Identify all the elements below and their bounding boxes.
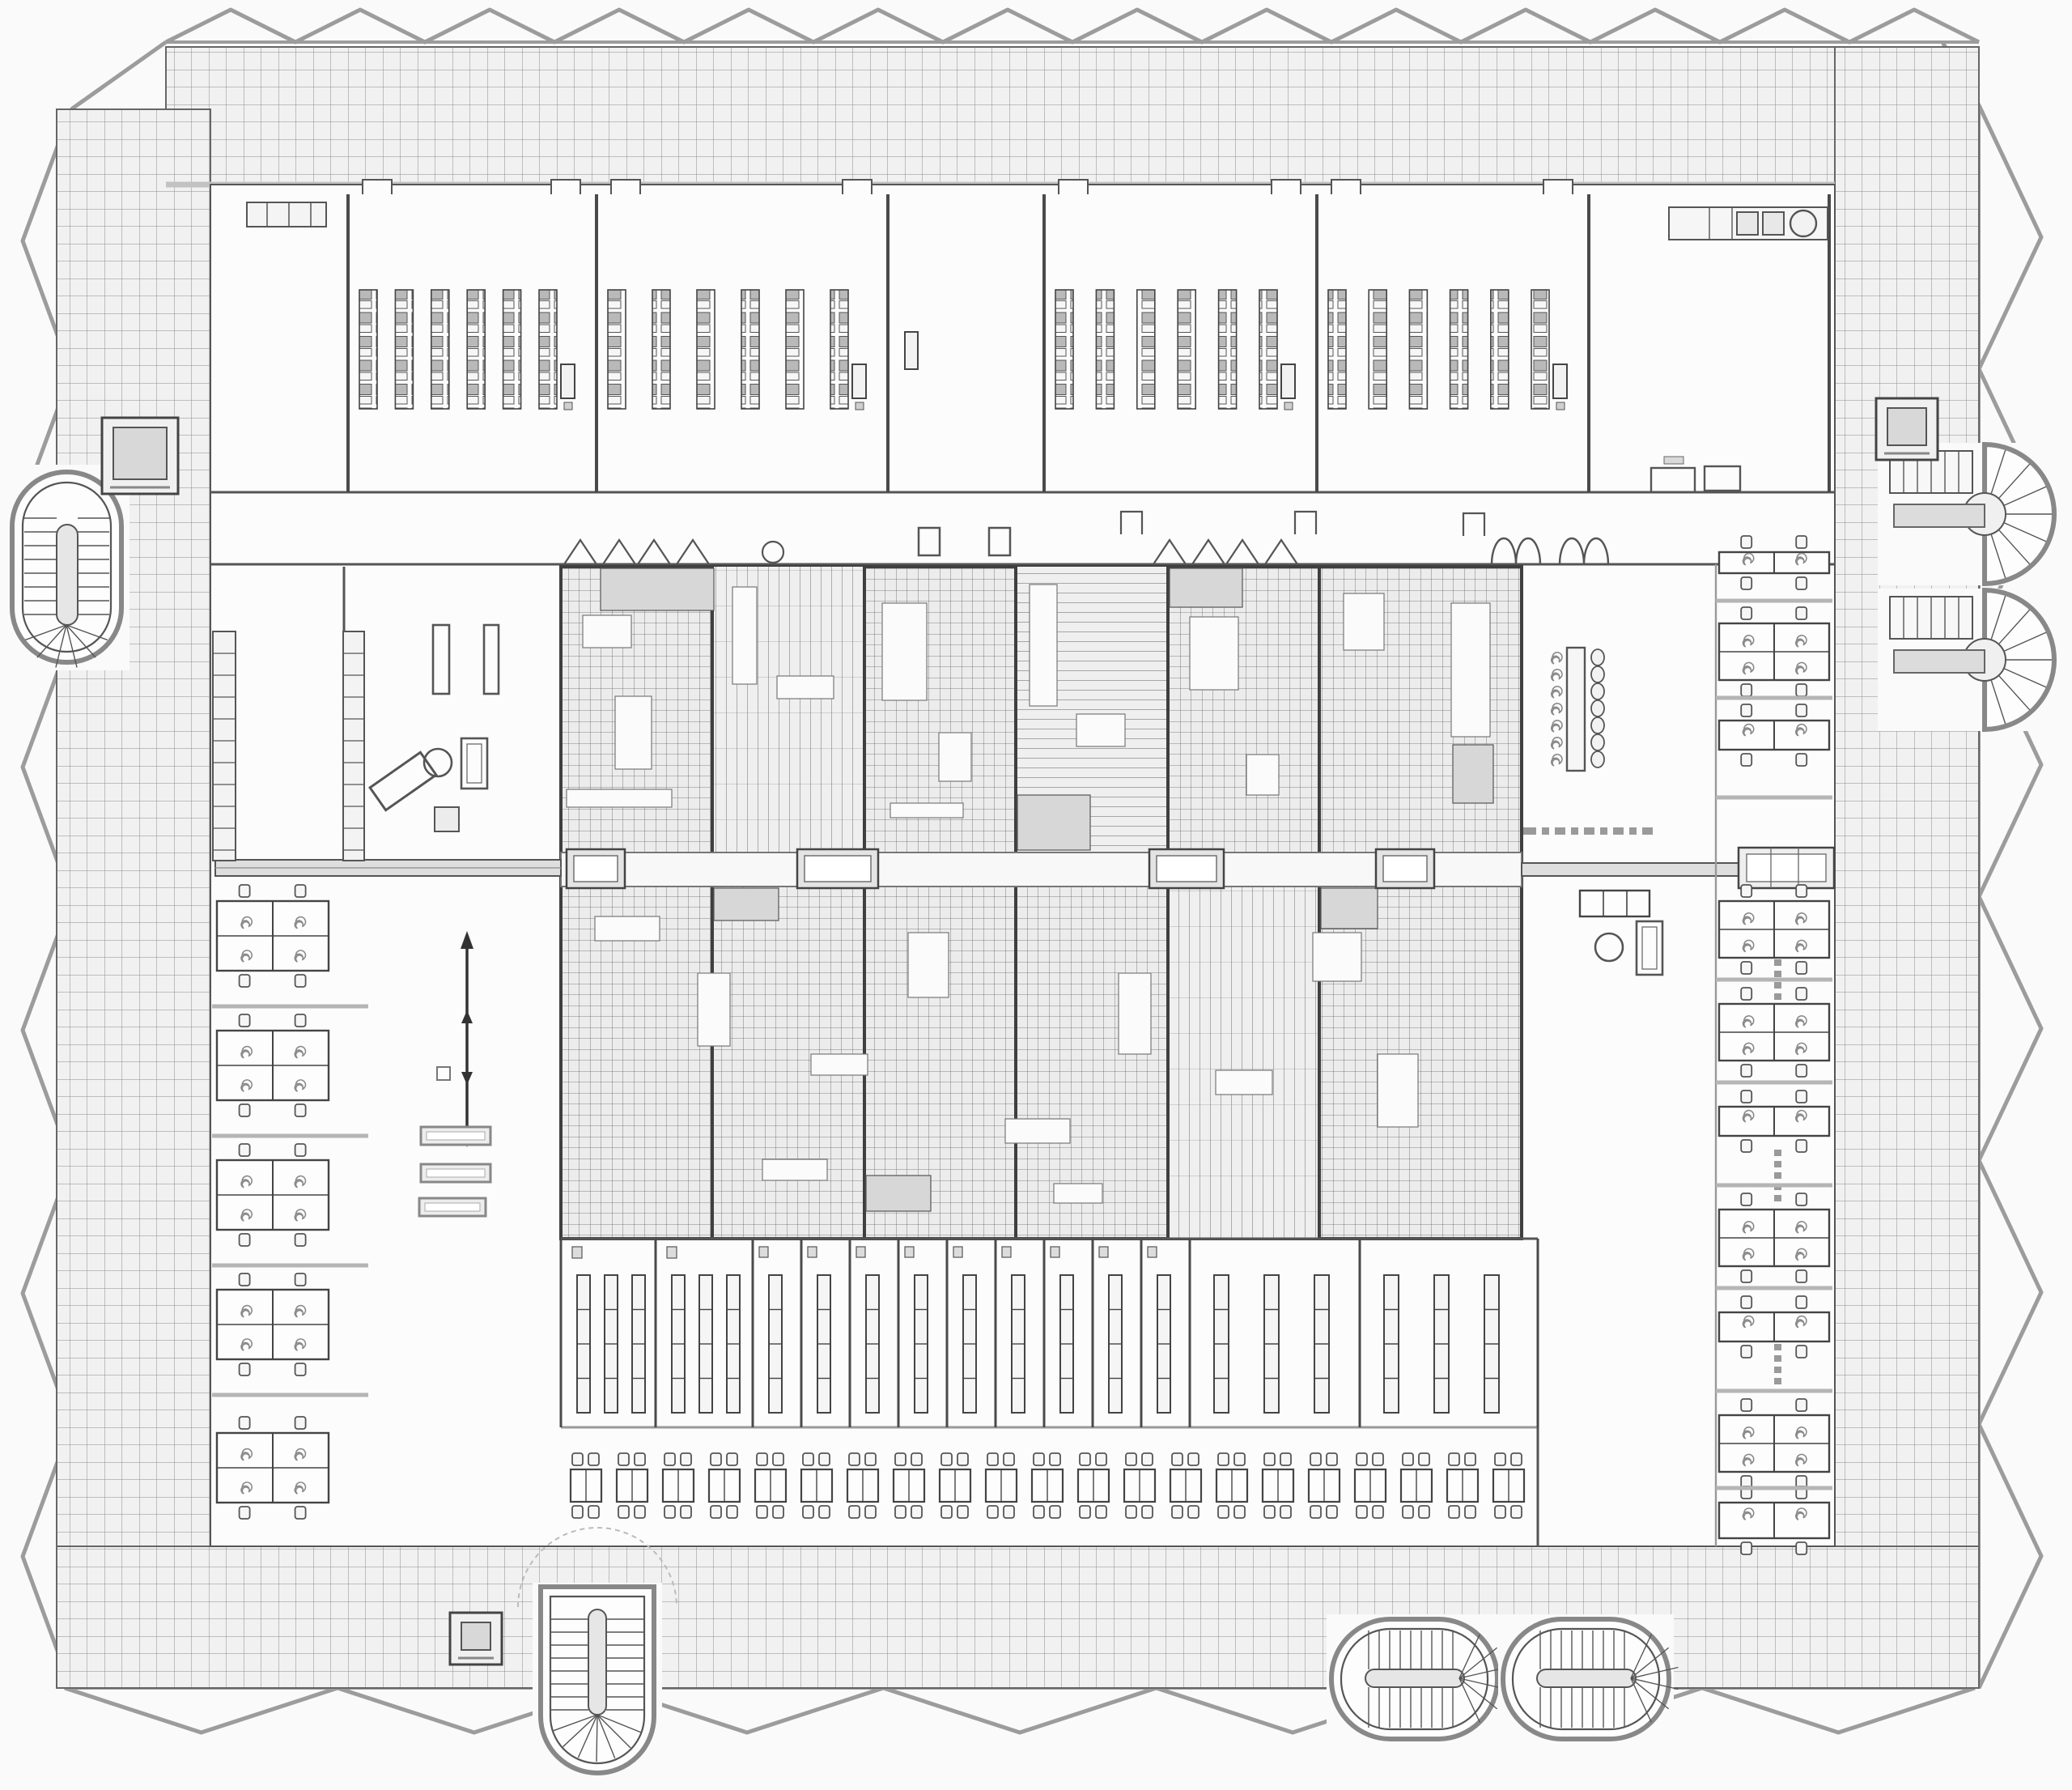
elevator-1 <box>102 418 178 494</box>
stack-dense-block <box>601 568 714 610</box>
chair-icon <box>1796 1346 1807 1358</box>
desk-row <box>539 290 557 409</box>
stack-aisle-gap <box>698 973 730 1046</box>
chair-icon <box>1327 1453 1337 1465</box>
chair-icon <box>1741 1270 1751 1282</box>
chair-icon <box>1796 536 1807 548</box>
desk-row <box>1531 290 1549 409</box>
stack-aisle-gap <box>1030 585 1057 706</box>
chair-icon <box>1218 1453 1229 1465</box>
chair-icon <box>240 1014 250 1027</box>
wall-shelf <box>247 202 326 227</box>
chair-icon <box>1310 1453 1321 1465</box>
seat-oval-icon <box>1591 649 1604 665</box>
stack-aisle-gap <box>762 1159 827 1180</box>
long-table <box>1567 648 1585 771</box>
chair-icon <box>1280 1453 1291 1465</box>
shelf-unit <box>672 1275 685 1413</box>
shelf-unit <box>699 1275 712 1413</box>
band-right <box>1835 47 1979 1688</box>
chair-icon <box>295 1234 306 1246</box>
desk-row <box>359 290 377 409</box>
chair-icon <box>711 1506 721 1518</box>
stack-aisle-gap <box>1005 1119 1070 1143</box>
chair-icon <box>1741 754 1751 766</box>
chair-icon <box>664 1453 675 1465</box>
seat-oval-icon <box>1591 734 1604 750</box>
chair-icon <box>1419 1506 1429 1518</box>
chair-icon <box>1050 1506 1060 1518</box>
chair-icon <box>635 1453 645 1465</box>
reading-cluster-left-1 <box>217 885 329 987</box>
chair-icon <box>1419 1453 1429 1465</box>
chair-icon <box>1741 1296 1751 1308</box>
stack-aisle-gap <box>1216 1070 1272 1095</box>
chair-icon <box>1796 885 1807 897</box>
desk-row <box>467 290 485 409</box>
book-stack-block <box>561 567 1522 1239</box>
chair-icon <box>240 1417 250 1429</box>
stack-aisle-gap <box>1054 1184 1102 1203</box>
shelf-unit <box>1157 1275 1170 1413</box>
chair-icon <box>1741 684 1751 696</box>
chair-icon <box>1373 1506 1383 1518</box>
chair-icon <box>1264 1453 1275 1465</box>
shelf-unit <box>1109 1275 1122 1413</box>
chair-icon <box>295 1363 306 1375</box>
chair-icon <box>1188 1506 1199 1518</box>
service-desk <box>905 332 918 369</box>
chair-icon <box>1741 1091 1751 1103</box>
chair-icon <box>711 1453 721 1465</box>
desk-row <box>1491 290 1509 409</box>
teacher-chair <box>564 402 572 410</box>
chair-icon <box>572 1453 583 1465</box>
counter-table <box>1580 891 1650 916</box>
chair-icon <box>1796 754 1807 766</box>
chair-icon <box>1126 1453 1136 1465</box>
band-top <box>166 47 1979 185</box>
seat-oval-icon <box>1591 700 1604 716</box>
chair-icon <box>240 1144 250 1156</box>
chair-icon <box>1796 607 1807 619</box>
chair-icon <box>773 1506 783 1518</box>
chair-icon <box>240 1273 250 1286</box>
chair-icon <box>1796 962 1807 974</box>
chair-icon <box>295 1417 306 1429</box>
chair-icon <box>1796 1091 1807 1103</box>
chair-icon <box>1004 1506 1014 1518</box>
desk-row <box>830 290 848 409</box>
door-gap-right <box>1543 179 1573 192</box>
chair-icon <box>1080 1506 1090 1518</box>
stack-dense-block <box>714 888 779 921</box>
shelf-unit <box>769 1275 782 1413</box>
chair-icon <box>819 1453 830 1465</box>
chair-icon <box>1511 1506 1522 1518</box>
chair-icon <box>957 1506 968 1518</box>
stack-aisle-gap <box>1246 755 1279 795</box>
shelf-unit <box>1012 1275 1025 1413</box>
chair-icon <box>1126 1506 1136 1518</box>
stack-aisle-gap <box>595 916 660 941</box>
chair-icon <box>1080 1453 1090 1465</box>
teacher-desk <box>852 364 866 398</box>
chair-icon <box>635 1506 645 1518</box>
stack-aisle-gap <box>908 933 949 997</box>
chair-icon <box>1264 1506 1275 1518</box>
stair-oval-bottom-right-1 <box>1327 1614 1506 1744</box>
chair-icon <box>1050 1453 1060 1465</box>
stack-dense-block <box>1453 745 1493 803</box>
desk-row <box>1369 290 1386 409</box>
chair-icon <box>895 1453 906 1465</box>
chair-icon <box>1373 1453 1383 1465</box>
desk-row <box>431 290 449 409</box>
anteroom <box>247 202 326 227</box>
chair-icon <box>1357 1453 1367 1465</box>
chair-icon <box>240 1104 250 1116</box>
chair-icon <box>757 1453 767 1465</box>
shelf-unit <box>1314 1275 1329 1413</box>
stack-aisle-gap <box>1378 1054 1418 1127</box>
desk-row <box>1137 290 1155 409</box>
chair-icon <box>1511 1453 1522 1465</box>
chair-icon <box>1004 1453 1014 1465</box>
chair-icon <box>295 1014 306 1027</box>
chair-icon <box>1796 1065 1807 1077</box>
chair-icon <box>664 1506 675 1518</box>
chair-icon <box>240 1234 250 1246</box>
desk-row <box>608 290 626 409</box>
spine-counter-east <box>1522 863 1739 876</box>
chair-icon <box>803 1506 813 1518</box>
teacher-chair <box>1284 402 1293 410</box>
shelf-unit <box>915 1275 928 1413</box>
chair-icon <box>1741 885 1751 897</box>
stair-semicircle-right-1 <box>1878 443 2070 585</box>
desk-row <box>652 290 670 409</box>
stack-aisle-gap <box>1344 593 1384 650</box>
desk-row <box>1259 290 1277 409</box>
reading-cluster-left-2 <box>217 1014 329 1116</box>
shelf-unit <box>577 1275 590 1413</box>
chair-icon <box>1096 1506 1106 1518</box>
stack-aisle-gap <box>1451 603 1490 737</box>
chair-icon <box>911 1453 922 1465</box>
desk-row <box>1055 290 1073 409</box>
shelf-unit <box>1214 1275 1229 1413</box>
floor-plan-canvas <box>0 0 2072 1790</box>
chair-icon <box>240 1507 250 1519</box>
stack-dense-block <box>1170 568 1242 607</box>
stair-oval-bottom-right-2 <box>1498 1614 1678 1744</box>
round-basin <box>1790 210 1816 236</box>
chair-icon <box>588 1453 599 1465</box>
reading-cluster-left-5 <box>217 1417 329 1519</box>
teacher-desk <box>1553 364 1567 398</box>
shelf-unit <box>727 1275 740 1413</box>
chair-icon <box>1495 1453 1505 1465</box>
chair-icon <box>1796 684 1807 696</box>
chair-icon <box>1327 1506 1337 1518</box>
chair-icon <box>295 1273 306 1286</box>
stack-aisle-gap <box>811 1054 868 1075</box>
chair-icon <box>1741 536 1751 548</box>
desk-row <box>1409 290 1427 409</box>
band-left <box>57 109 210 1688</box>
chair-icon <box>865 1453 876 1465</box>
square-basin <box>1737 212 1758 235</box>
chair-icon <box>240 885 250 897</box>
desk-row <box>395 290 413 409</box>
chair-icon <box>1142 1506 1153 1518</box>
stack-bay-texture <box>1168 886 1319 1239</box>
chair-icon <box>1796 1270 1807 1282</box>
stair-semicircle-right-2 <box>1878 589 2070 731</box>
chair-icon <box>618 1453 629 1465</box>
shelf-unit <box>1060 1275 1073 1413</box>
desk-row <box>741 290 759 409</box>
chair-icon <box>295 1104 306 1116</box>
door-gap-right <box>1272 179 1301 192</box>
reading-cluster-left-4 <box>217 1273 329 1375</box>
chair-icon <box>803 1453 813 1465</box>
square-basin <box>1763 212 1784 235</box>
stack-dense-block <box>866 1176 931 1211</box>
chair-icon <box>1741 988 1751 1000</box>
shelf-unit <box>1434 1275 1449 1413</box>
chair-icon <box>1357 1506 1367 1518</box>
chair-icon <box>295 885 306 897</box>
chair-icon <box>1796 577 1807 589</box>
band-bottom <box>57 1546 1979 1688</box>
chair-icon <box>849 1453 860 1465</box>
teacher-desk <box>561 364 575 398</box>
chair-icon <box>240 1363 250 1375</box>
shelf-unit <box>1264 1275 1279 1413</box>
chair-icon <box>1465 1453 1475 1465</box>
chair-icon <box>1188 1453 1199 1465</box>
chair-icon <box>1403 1506 1413 1518</box>
chair-icon <box>1034 1506 1044 1518</box>
chair-icon <box>295 1144 306 1156</box>
chair-icon <box>1741 1193 1751 1205</box>
door-gap-left <box>363 179 392 192</box>
stack-aisle-gap <box>567 789 672 807</box>
desk-row <box>1178 290 1195 409</box>
door-gap-right <box>843 179 872 192</box>
chair-icon <box>1449 1453 1459 1465</box>
chair-icon <box>757 1506 767 1518</box>
chair-icon <box>1741 607 1751 619</box>
seat-oval-icon <box>1591 717 1604 733</box>
chair-icon <box>1741 1542 1751 1554</box>
chair-icon <box>865 1506 876 1518</box>
chair-icon <box>1796 1399 1807 1411</box>
stack-aisle-gap <box>1190 617 1238 690</box>
desk-row <box>1450 290 1468 409</box>
chair-icon <box>957 1453 968 1465</box>
chair-icon <box>941 1453 952 1465</box>
teacher-desk <box>1281 364 1295 398</box>
chair-icon <box>987 1453 998 1465</box>
chair-icon <box>987 1506 998 1518</box>
stack-aisle-gap <box>1076 714 1125 746</box>
stack-aisle-gap <box>890 803 963 818</box>
door-gap-left <box>611 179 640 192</box>
shelf-unit <box>1484 1275 1499 1413</box>
stair-oval-left <box>5 465 129 670</box>
desk-row <box>697 290 715 409</box>
chair-icon <box>1741 577 1751 589</box>
stack-aisle-gap <box>1313 933 1361 981</box>
chair-icon <box>295 975 306 987</box>
chair-icon <box>1796 988 1807 1000</box>
desk-row <box>503 290 521 409</box>
chair-icon <box>941 1506 952 1518</box>
stack-dense-block <box>1017 795 1090 850</box>
desk-row <box>1219 290 1237 409</box>
chair-icon <box>572 1506 583 1518</box>
stack-dense-block <box>1321 888 1378 929</box>
chair-icon <box>1741 1140 1751 1152</box>
desk-row <box>1328 290 1346 409</box>
chair-icon <box>1796 1140 1807 1152</box>
desk-row <box>1096 290 1114 409</box>
door-gap-left <box>1059 179 1088 192</box>
door-gap-left <box>1331 179 1361 192</box>
teacher-chair <box>856 402 864 410</box>
chair-icon <box>1796 1193 1807 1205</box>
chair-icon <box>849 1506 860 1518</box>
seat-oval-icon <box>1591 751 1604 767</box>
chair-icon <box>1741 704 1751 716</box>
chair-icon <box>1280 1506 1291 1518</box>
shelf-unit <box>866 1275 879 1413</box>
elevator-3 <box>450 1613 502 1665</box>
chair-icon <box>240 975 250 987</box>
chair-icon <box>895 1506 906 1518</box>
chair-icon <box>1403 1453 1413 1465</box>
small-stand <box>435 807 459 831</box>
stack-aisle-gap <box>777 676 834 699</box>
chair-icon <box>1741 1346 1751 1358</box>
chair-icon <box>588 1506 599 1518</box>
chair-icon <box>295 1507 306 1519</box>
chair-icon <box>1741 962 1751 974</box>
chair-icon <box>1142 1453 1153 1465</box>
stack-aisle-gap <box>583 615 631 648</box>
elevator-2 <box>1876 398 1938 460</box>
chair-icon <box>1465 1506 1475 1518</box>
chair-icon <box>1449 1506 1459 1518</box>
shelf-unit <box>605 1275 618 1413</box>
chair-icon <box>1034 1453 1044 1465</box>
shelf-unit <box>817 1275 830 1413</box>
chair-icon <box>727 1506 737 1518</box>
stack-aisle-gap <box>1119 973 1151 1054</box>
chair-icon <box>727 1453 737 1465</box>
chair-icon <box>1796 1542 1807 1554</box>
divider-shelving <box>343 631 364 861</box>
chair-icon <box>1234 1453 1245 1465</box>
chair-icon <box>681 1506 691 1518</box>
door-gap-right <box>551 179 580 192</box>
stack-aisle-gap <box>615 696 652 769</box>
chair-icon <box>1741 1399 1751 1411</box>
chair-icon <box>773 1453 783 1465</box>
seat-oval-icon <box>1591 683 1604 699</box>
chair-icon <box>1796 1296 1807 1308</box>
teacher-chair <box>1556 402 1565 410</box>
chair-icon <box>1172 1453 1182 1465</box>
shelf-unit <box>632 1275 645 1413</box>
chair-icon <box>1796 704 1807 716</box>
chair-icon <box>1234 1506 1245 1518</box>
shelf-unit <box>1384 1275 1399 1413</box>
desk-gadget <box>1664 457 1683 464</box>
chair-icon <box>819 1506 830 1518</box>
stack-aisle-gap <box>732 587 757 684</box>
chair-icon <box>618 1506 629 1518</box>
shelf-unit <box>963 1275 976 1413</box>
chair-icon <box>1096 1453 1106 1465</box>
chair-icon <box>1310 1506 1321 1518</box>
desk-row <box>786 290 804 409</box>
stack-aisle-gap <box>939 733 971 781</box>
chair-icon <box>681 1453 691 1465</box>
floor-plan-drawing <box>0 0 2072 1790</box>
chair-icon <box>1495 1506 1505 1518</box>
chair-icon <box>1741 1065 1751 1077</box>
chair-icon <box>1218 1506 1229 1518</box>
stack-aisle-gap <box>882 603 927 700</box>
chair-icon <box>911 1506 922 1518</box>
seat-oval-icon <box>1591 666 1604 682</box>
reading-cluster-left-3 <box>217 1144 329 1246</box>
chair-icon <box>1172 1506 1182 1518</box>
wall-shelving <box>213 631 236 861</box>
